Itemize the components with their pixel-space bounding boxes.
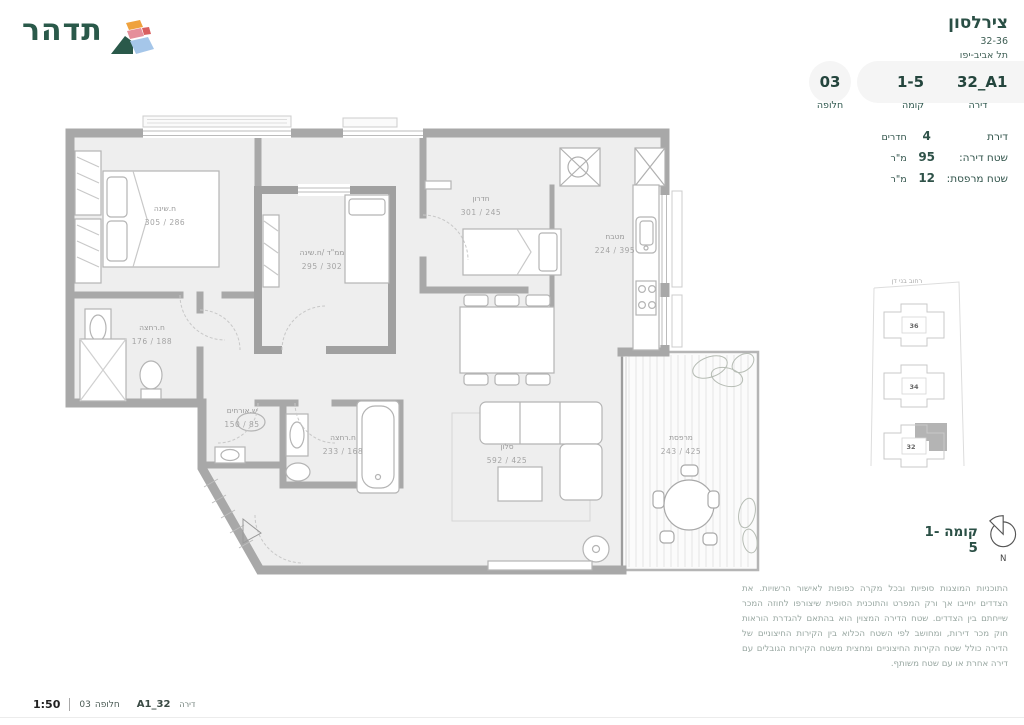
disclaimer-text: התוכניות המוצגות סופיות ובכל מקרה כפופות…: [742, 582, 1008, 672]
info-balcony-unit: מ"ר: [881, 174, 906, 185]
svg-text:305 / 286: 305 / 286: [145, 218, 185, 227]
svg-text:150 / 85: 150 / 85: [224, 420, 259, 429]
address-line2: תל אביב-יפו: [948, 50, 1008, 61]
floor-range-label: קומה 1-5: [918, 524, 978, 556]
svg-text:ח.רחצה: ח.רחצה: [139, 323, 165, 332]
svg-text:592 / 425: 592 / 425: [487, 456, 527, 465]
apartment-label-caption: דירה: [950, 100, 1006, 111]
dining-set: [460, 295, 554, 385]
floor-compass-block: N קומה 1-5: [918, 514, 1024, 566]
svg-text:מטבח: מטבח: [605, 232, 624, 241]
project-name: צירלסון: [948, 13, 1008, 33]
footer-alternative-value: 03: [79, 700, 90, 710]
svg-text:301 / 245: 301 / 245: [461, 208, 501, 217]
footer-alternative: חלופה 03: [79, 700, 119, 710]
svg-text:ממ"ד /ח.שינה: ממ"ד /ח.שינה: [300, 248, 345, 257]
svg-text:34: 34: [909, 383, 919, 391]
key-plan-building-32: 32: [884, 423, 947, 467]
compass-north-label: N: [1000, 554, 1006, 564]
svg-text:233 / 168: 233 / 168: [323, 447, 363, 456]
sofa: [480, 402, 602, 444]
balcony-deck: [622, 352, 758, 570]
svg-text:מרפסת: מרפסת: [669, 433, 693, 442]
svg-text:243 / 425: 243 / 425: [661, 447, 701, 456]
brand-logo[interactable]: תדהר: [22, 16, 155, 58]
brand-logo-text: תדהר: [22, 16, 103, 46]
key-plan-building-34: 34: [884, 365, 944, 407]
info-area-label: שטח דירה:: [947, 152, 1008, 164]
info-balcony-label: שטח מרפסת:: [947, 173, 1008, 185]
svg-text:חדרון: חדרון: [472, 194, 489, 203]
svg-text:36: 36: [909, 322, 919, 330]
svg-text:176 / 188: 176 / 188: [132, 337, 172, 346]
svg-text:ח.רחצה: ח.רחצה: [330, 433, 356, 442]
info-rooms-unit: חדרים: [881, 132, 906, 143]
info-area-value: 95: [907, 150, 947, 164]
tv-bench: [488, 561, 592, 570]
apartment-value[interactable]: 32_A1: [957, 73, 1007, 91]
alternative-label: חלופה: [802, 100, 858, 111]
floor-value[interactable]: 1-5: [897, 73, 924, 91]
selector-pill[interactable]: 1-5 32_A1: [857, 61, 1024, 103]
apartment-info: דירת 4 חדרים שטח דירה: 95 מ"ר שטח מרפסת:…: [881, 129, 1008, 185]
svg-text:סלון: סלון: [500, 442, 513, 451]
alternative-value: 03: [820, 73, 841, 91]
info-area-unit: מ"ר: [881, 153, 906, 164]
address-line1: 32-36: [948, 36, 1008, 47]
toilet: [140, 361, 162, 389]
brand-logo-icon: [109, 16, 155, 58]
dining-table: [460, 307, 554, 373]
title-block: צירלסון 32-36 תל אביב-יפו: [948, 13, 1008, 61]
side-table: [583, 536, 609, 562]
footer: דירה 32_A1 חלופה 03 1:50: [33, 698, 195, 711]
svg-text:224 / 395: 224 / 395: [595, 246, 635, 255]
svg-text:32: 32: [906, 443, 915, 451]
windows-right: [659, 191, 682, 347]
footer-divider: [69, 698, 70, 711]
floor-plan: ח.שינה305 / 286 ממ"ד /ח.שינה295 / 302 חד…: [55, 115, 775, 590]
sink: [286, 414, 308, 456]
kitchen-counter: [633, 185, 659, 350]
key-plan-building-36: 36: [884, 304, 944, 346]
compass-icon: N: [986, 514, 1024, 566]
toilet: [286, 463, 310, 481]
round-table: [664, 480, 714, 530]
info-balcony-value: 12: [907, 171, 947, 185]
windows-top: [143, 116, 423, 138]
info-rooms-label: דירת: [947, 131, 1008, 143]
footer-apartment-label: דירה: [179, 700, 195, 709]
key-plan: 36 34 32: [862, 268, 974, 468]
footer-apartment-value: 32_A1: [137, 699, 171, 710]
page: תדהר צירלסון 32-36 תל אביב-יפו 03 1-5 32…: [0, 0, 1024, 725]
floor-label-caption: קומה: [885, 100, 941, 111]
selector-alternative[interactable]: 03: [809, 61, 851, 103]
svg-text:ש.אורחים: ש.אורחים: [227, 406, 258, 415]
bottom-rule: [0, 717, 1024, 718]
svg-text:295 / 302: 295 / 302: [302, 262, 342, 271]
sofa-chaise: [560, 444, 602, 500]
svg-text:ח.שינה: ח.שינה: [154, 204, 176, 213]
footer-scale: 1:50: [33, 698, 60, 711]
footer-alternative-label: חלופה: [95, 700, 120, 710]
info-rooms-value: 4: [907, 129, 947, 143]
coffee-table: [498, 467, 542, 501]
